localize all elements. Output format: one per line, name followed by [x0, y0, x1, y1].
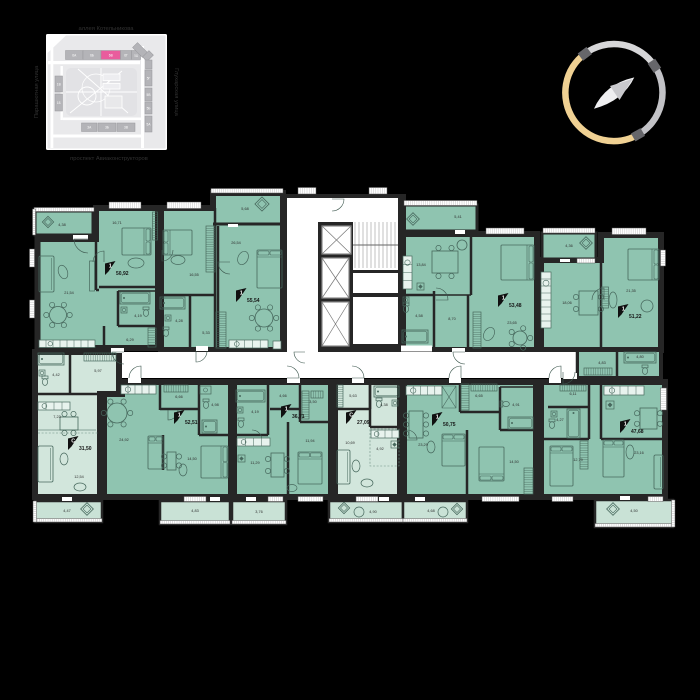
svg-text:47,68: 47,68: [631, 429, 644, 435]
svg-text:50,75: 50,75: [443, 422, 456, 428]
svg-text:1В: 1В: [57, 82, 61, 86]
svg-text:53,48: 53,48: [509, 303, 522, 309]
svg-text:1: 1: [285, 406, 288, 412]
svg-text:10,69: 10,69: [345, 441, 355, 445]
svg-text:1: 1: [624, 421, 627, 427]
svg-text:23,29: 23,29: [418, 443, 428, 447]
svg-text:4,83: 4,83: [191, 509, 198, 513]
svg-text:16,71: 16,71: [112, 221, 122, 225]
svg-text:4,66: 4,66: [279, 394, 286, 398]
svg-text:27,09: 27,09: [357, 420, 370, 426]
svg-text:1: 1: [240, 290, 243, 296]
svg-text:3В: 3В: [124, 126, 128, 130]
svg-text:16,55: 16,55: [189, 273, 199, 277]
svg-text:5,41: 5,41: [454, 215, 461, 219]
svg-text:31,50: 31,50: [79, 446, 92, 452]
svg-text:14,50: 14,50: [509, 460, 519, 464]
svg-text:аллея Котельникова: аллея Котельникова: [79, 26, 135, 32]
svg-text:1: 1: [622, 306, 625, 312]
svg-text:6,11: 6,11: [569, 392, 576, 396]
svg-text:4,47: 4,47: [63, 509, 70, 513]
svg-text:6В: 6В: [109, 53, 113, 57]
svg-text:24,92: 24,92: [119, 438, 129, 442]
svg-text:5,68: 5,68: [241, 207, 248, 211]
svg-text:52,51: 52,51: [185, 420, 198, 426]
svg-text:4,38: 4,38: [58, 223, 65, 227]
svg-text:1: 1: [436, 414, 439, 420]
svg-text:4,98: 4,98: [211, 403, 218, 407]
svg-text:С: С: [349, 412, 353, 418]
svg-text:4,19: 4,19: [134, 314, 141, 318]
svg-text:проспект Авиаконструкторов: проспект Авиаконструкторов: [70, 156, 148, 162]
svg-text:7,23: 7,23: [53, 415, 60, 419]
svg-text:12,54: 12,54: [74, 475, 84, 479]
svg-text:4,58: 4,58: [415, 314, 422, 318]
svg-text:13,84: 13,84: [416, 263, 426, 267]
svg-text:5Д: 5Д: [134, 54, 138, 58]
svg-text:4,42: 4,42: [52, 373, 59, 377]
svg-text:23,16: 23,16: [634, 451, 644, 455]
svg-text:5,97: 5,97: [94, 369, 101, 373]
svg-text:Глухарская улица: Глухарская улица: [173, 68, 179, 117]
svg-text:5Б: 5Б: [147, 106, 151, 110]
svg-text:36,71: 36,71: [292, 414, 305, 420]
svg-text:3,50: 3,50: [309, 400, 316, 404]
svg-text:1Б: 1Б: [57, 101, 61, 105]
svg-text:3Б: 3Б: [105, 126, 109, 130]
svg-text:1: 1: [178, 412, 181, 418]
svg-text:21,54: 21,54: [64, 291, 74, 295]
svg-text:4,92: 4,92: [376, 447, 383, 451]
svg-text:4,80: 4,80: [636, 355, 643, 359]
svg-text:4,27: 4,27: [556, 418, 563, 422]
svg-text:5,33: 5,33: [202, 331, 209, 335]
svg-text:4,28: 4,28: [175, 319, 182, 323]
svg-text:23,65: 23,65: [507, 321, 517, 325]
svg-text:11,29: 11,29: [250, 461, 259, 465]
svg-text:4,83: 4,83: [598, 361, 605, 365]
svg-text:4,50: 4,50: [630, 509, 637, 513]
svg-text:5,63: 5,63: [349, 394, 356, 398]
svg-text:6,29: 6,29: [126, 338, 133, 342]
svg-text:3,76: 3,76: [255, 510, 262, 514]
svg-text:1: 1: [109, 263, 112, 269]
svg-text:Парашютная улица: Парашютная улица: [34, 65, 40, 118]
svg-text:14,50: 14,50: [187, 457, 197, 461]
svg-text:6,65: 6,65: [475, 394, 482, 398]
svg-text:4,68: 4,68: [427, 509, 434, 513]
svg-text:50,92: 50,92: [116, 271, 129, 277]
svg-text:4,91: 4,91: [512, 403, 519, 407]
svg-text:6Г: 6Г: [124, 53, 128, 57]
svg-text:5В: 5В: [147, 93, 151, 97]
svg-text:С: С: [71, 438, 75, 444]
svg-text:4,36: 4,36: [565, 244, 572, 248]
svg-text:4,38: 4,38: [380, 403, 387, 407]
svg-text:11,94: 11,94: [305, 439, 314, 443]
svg-text:18,06: 18,06: [562, 301, 572, 305]
svg-text:5Г: 5Г: [147, 76, 151, 80]
svg-text:55,54: 55,54: [247, 298, 260, 304]
svg-text:1: 1: [502, 295, 505, 301]
svg-text:26,54: 26,54: [231, 241, 241, 245]
svg-text:4,19: 4,19: [251, 410, 258, 414]
svg-text:8,70: 8,70: [448, 317, 455, 321]
svg-text:4,90: 4,90: [369, 510, 376, 514]
svg-text:6Б: 6Б: [90, 53, 94, 57]
svg-text:51,22: 51,22: [629, 314, 642, 320]
svg-text:21,35: 21,35: [626, 289, 636, 293]
svg-text:6,66: 6,66: [175, 395, 182, 399]
svg-text:12,79: 12,79: [573, 458, 583, 462]
